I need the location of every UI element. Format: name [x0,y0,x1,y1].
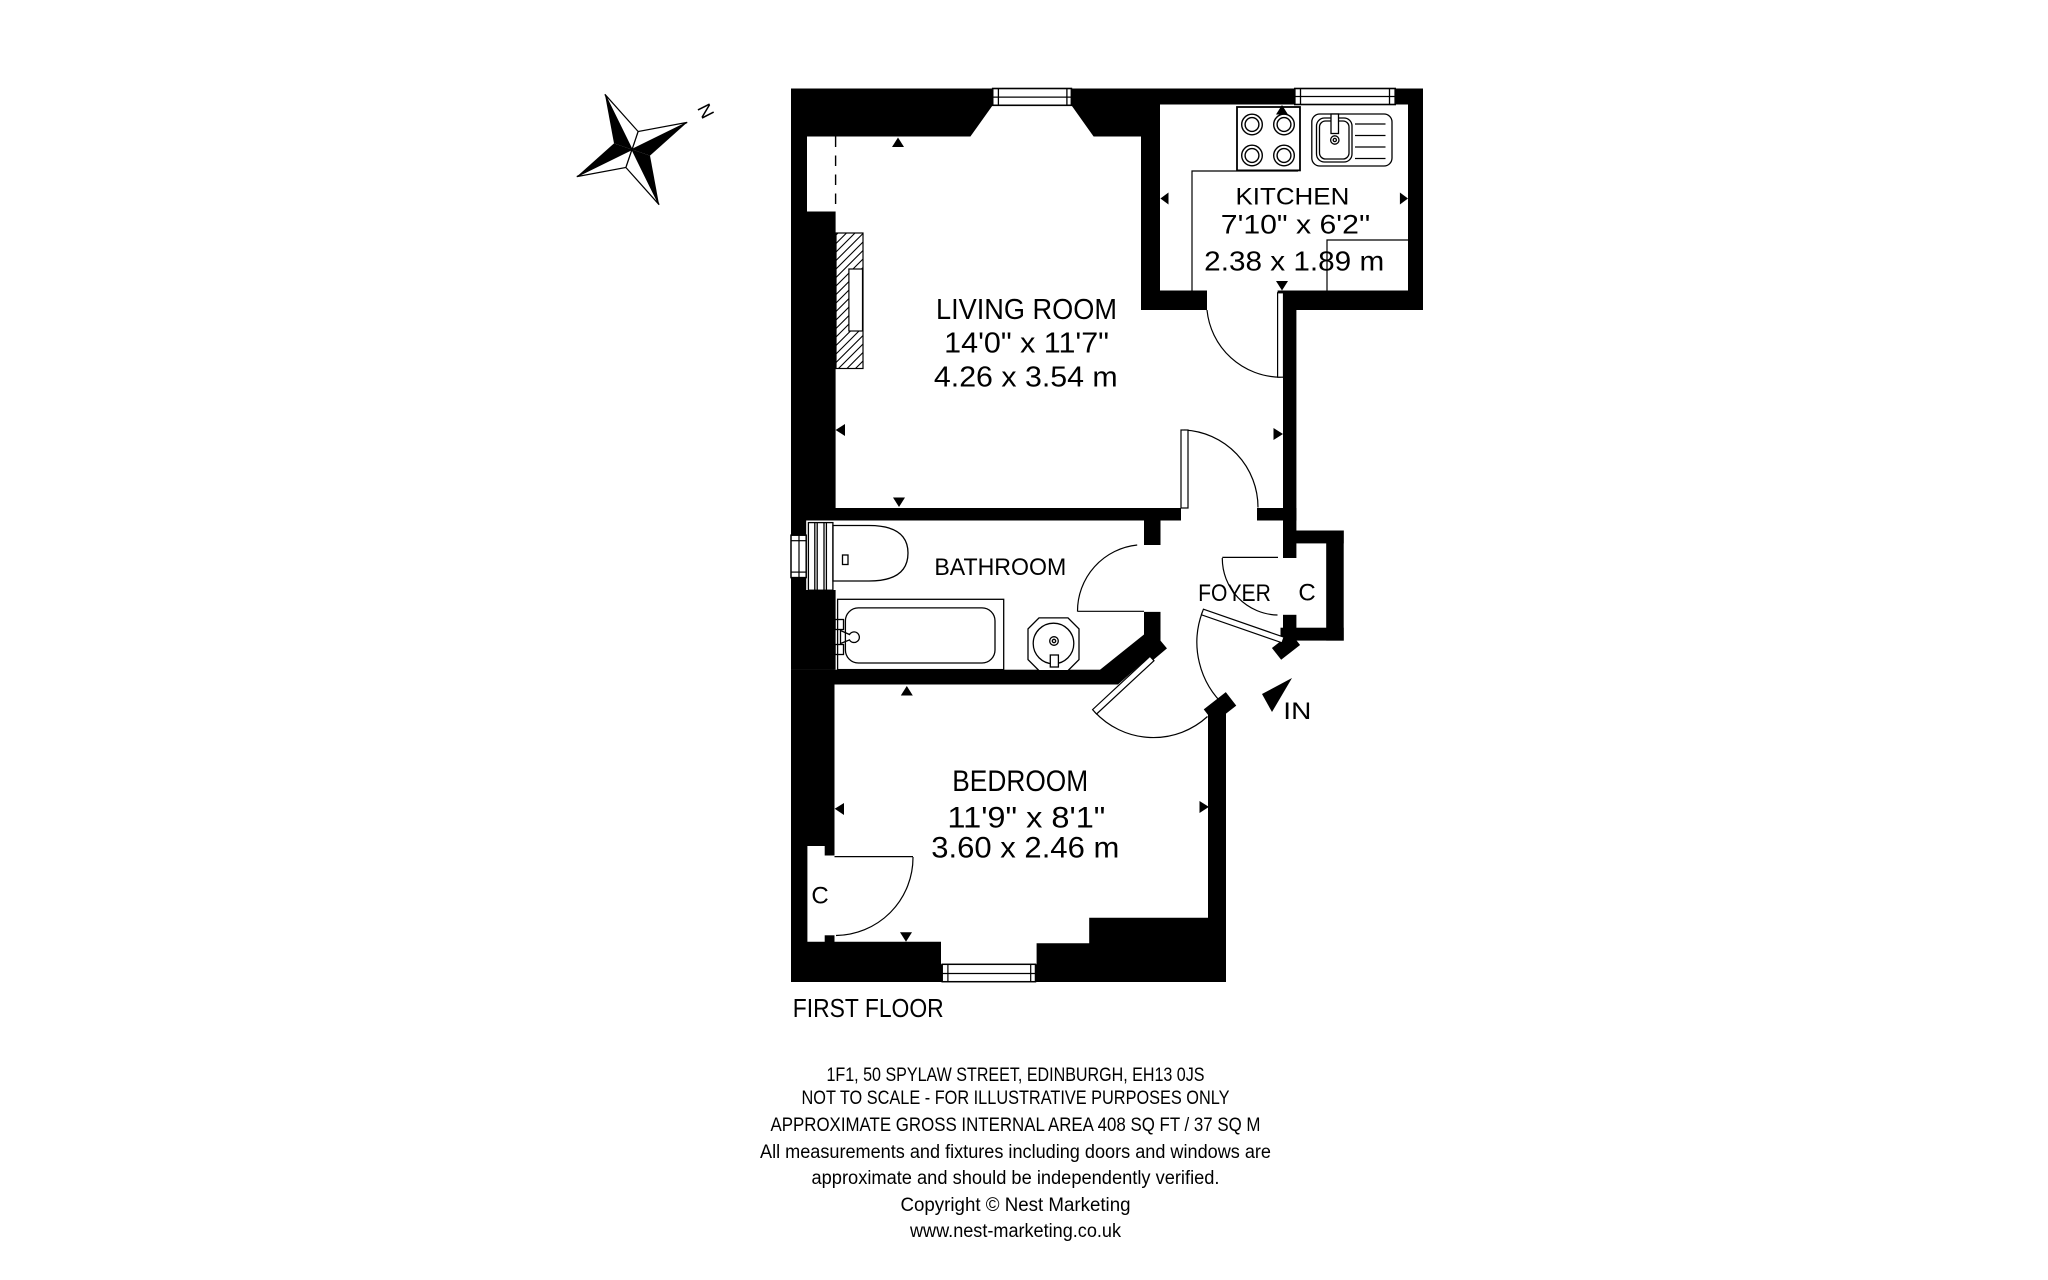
svg-text:LIVING ROOM: LIVING ROOM [936,294,1117,326]
svg-text:4.26 x 3.54 m: 4.26 x 3.54 m [934,361,1118,393]
svg-text:2.38 x 1.89 m: 2.38 x 1.89 m [1204,245,1384,276]
svg-text:BEDROOM: BEDROOM [952,765,1088,798]
svg-text:1F1, 50 SPYLAW STREET, EDINBUR: 1F1, 50 SPYLAW STREET, EDINBURGH, EH13 0… [827,1065,1205,1086]
svg-text:3.60 x 2.46 m: 3.60 x 2.46 m [931,832,1119,865]
svg-text:FIRST FLOOR: FIRST FLOOR [793,995,944,1023]
svg-text:All measurements and fixtures: All measurements and fixtures including … [760,1142,1271,1163]
svg-text:14'0" x 11'7": 14'0" x 11'7" [944,328,1109,360]
svg-text:11'9" x 8'1": 11'9" x 8'1" [947,801,1105,834]
svg-text:approximate and should be inde: approximate and should be independently … [812,1168,1220,1189]
svg-text:FOYER: FOYER [1198,580,1271,607]
svg-text:BATHROOM: BATHROOM [934,554,1066,581]
svg-text:7'10" x 6'2'': 7'10" x 6'2'' [1221,210,1371,240]
svg-text:C: C [1298,580,1315,607]
svg-text:www.nest-marketing.co.uk: www.nest-marketing.co.uk [909,1221,1121,1242]
svg-text:IN: IN [1283,698,1311,725]
svg-text:NOT TO SCALE - FOR ILLUSTRATIV: NOT TO SCALE - FOR ILLUSTRATIVE PURPOSES… [802,1088,1230,1109]
svg-text:Copyright © Nest Marketing: Copyright © Nest Marketing [901,1195,1131,1216]
svg-text:KITCHEN: KITCHEN [1236,184,1350,211]
svg-text:C: C [811,883,828,910]
svg-text:APPROXIMATE GROSS INTERNAL ARE: APPROXIMATE GROSS INTERNAL AREA 408 SQ F… [771,1115,1261,1136]
